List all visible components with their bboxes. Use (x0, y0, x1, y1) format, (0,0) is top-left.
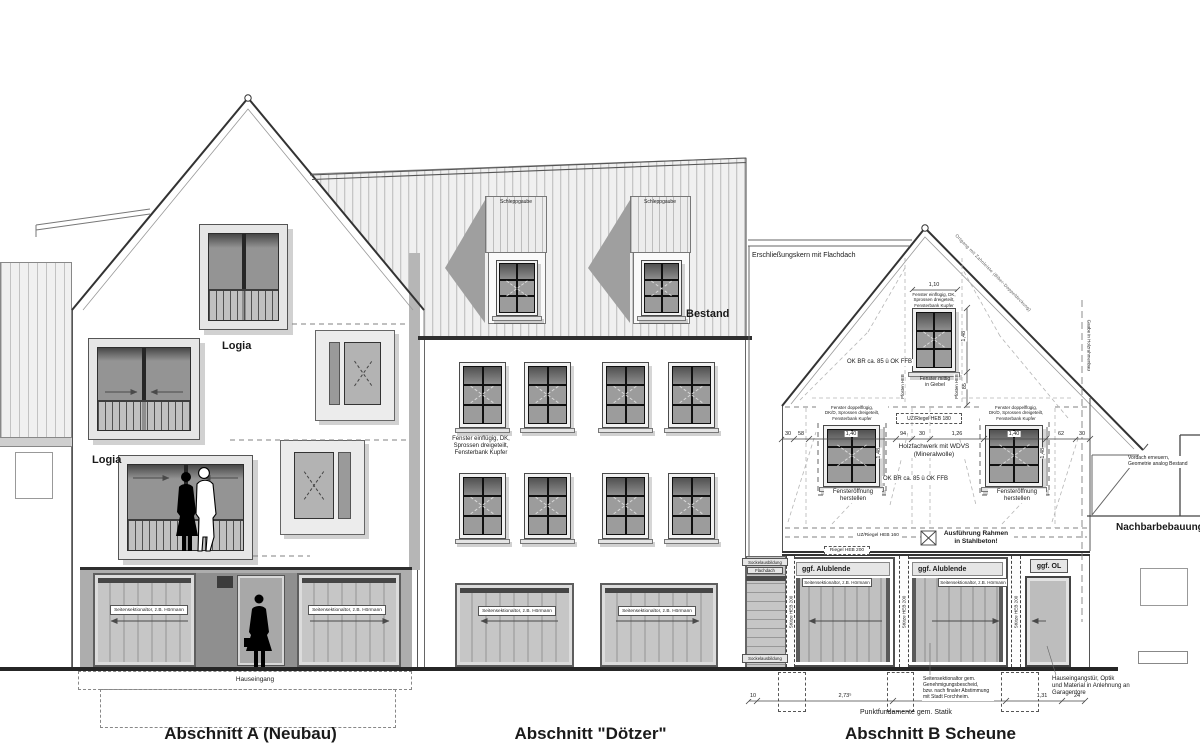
loggia-label-lower: Logia (92, 454, 121, 467)
basement-outline-2 (100, 689, 396, 728)
vertical-dim: 1,48 (1040, 448, 1046, 459)
door-body (796, 578, 890, 662)
window-6pane (459, 362, 506, 428)
label-text: ggf. OL (1037, 563, 1062, 570)
balcony-glazing (97, 347, 191, 431)
dim-label: 94 (899, 431, 907, 437)
label-text: Seitensektionaltor, z.B. Hörmann (312, 608, 382, 613)
stahlbeton-note: Ausführung Rahmen in Stahlbeton! (938, 530, 1014, 545)
column-label: Stütze HEB 200 (902, 593, 907, 630)
house-entrance-door-b (1025, 576, 1071, 667)
connector-note: Erschließungskern mit Flachdach (752, 252, 856, 260)
left-neighbour-cladding (0, 262, 72, 438)
dim-label: 1,10 (928, 282, 941, 288)
dormer-right-shadow (588, 200, 630, 323)
architectural-elevation-sheet: { "titles": { "a": "Abschnitt A (Neubau)… (0, 0, 1200, 751)
vertical-dim: 1,48 (961, 331, 967, 342)
window-spec-note: Fenster einflügig, DK, Sprossen dreigete… (444, 436, 518, 457)
side-panel (338, 452, 351, 519)
left-neighbour-band (0, 437, 72, 447)
garage-door-label: Seitensektionaltor, z.B. Hörmann (938, 578, 1008, 587)
neighbour-step (1138, 651, 1188, 664)
bestand-label: Bestand (686, 308, 729, 321)
alu-cover-strip: ggf. Alublende (796, 562, 890, 576)
label-text: Seitensektionaltor, z.B. Hörmann (114, 608, 184, 613)
window-6pane (524, 473, 571, 539)
dim-label: 62 (1057, 431, 1065, 437)
dormer-label: Schleppgaube (487, 200, 545, 206)
garage-door-d-left (455, 583, 574, 667)
dim-label: 58 (797, 431, 805, 437)
vertical-dim: 85 (962, 383, 968, 389)
window-6pane (602, 473, 649, 539)
label-text: Sockelausbildung (748, 560, 782, 565)
column-label: Stütze HEB 200 (788, 593, 793, 630)
neighbour-label: Nachbarbebauung (1116, 522, 1200, 534)
post-label: Pfosten HEB (900, 374, 905, 399)
section-title-doetzer: Abschnitt "Dötzer" (468, 724, 713, 744)
label-text: UZ/Riegel HEB 180 (907, 416, 951, 422)
neighbour-outline (1087, 435, 1200, 516)
loggia-label-upper: Logia (222, 340, 251, 353)
steel-column: Stütze HEB 200 (899, 556, 909, 667)
steel-column: Stütze HEB 200 (786, 556, 795, 667)
gable-window-6pane (912, 308, 956, 372)
gable-window-note: Fenster einflügig, DK, Sprossen dreigete… (908, 292, 960, 308)
loggia-window-upper (199, 224, 288, 330)
garage-door-b-left: ggf. Alublende (791, 557, 895, 667)
dim-label: 1,40 (845, 431, 858, 437)
post-label: Pfosten HEB (954, 374, 959, 399)
label-text: Seitensektionaltor, z.B. Hörmann (482, 609, 552, 614)
garage-door-label: Seitensektionaltor, z.B. Hörmann (618, 606, 696, 616)
alu-cover-strip: ggf. Alublende (912, 562, 1003, 576)
section-title-a: Abschnitt A (Neubau) (128, 724, 373, 744)
window-6pane (602, 362, 649, 428)
label-text: Flachdach (755, 568, 775, 573)
connector-band (746, 576, 786, 581)
vertical-dim: 1,48 (876, 448, 882, 459)
garage-door-label: Seitensektionaltor, z.B. Hörmann (478, 606, 556, 616)
opening-note: Fensteröffnung herstellen (988, 489, 1046, 503)
window-spec-note: Fenster doppelflügig, DK/D, Sprossen dre… (980, 405, 1052, 421)
door-body (912, 578, 1003, 662)
dormer-label: Schleppgaube (631, 200, 689, 206)
window-casement-upper (315, 330, 395, 421)
flachdach-label-box: Flachdach (747, 567, 783, 574)
window-leaf (294, 452, 334, 519)
loggia-glazing (208, 233, 279, 321)
building-b-right-wall (1071, 556, 1090, 668)
label-text: ggf. Alublende (918, 566, 966, 573)
garage-door-label: Seitensektionaltor, z.B. Hörmann (308, 605, 386, 615)
entrance-label: Hauseingang (224, 676, 286, 684)
garage-door-d-right (600, 583, 718, 667)
window-6pane (496, 260, 538, 316)
garage-door-a-left (93, 573, 196, 667)
fachwerk-note: Holzfachwerk mit WDVS (Mineralwolle) (893, 443, 975, 458)
dormer-left-shadow (445, 200, 485, 323)
riegel-160-label: UZ/Riegel HEB 160 (856, 533, 900, 539)
label-text: Seitensektionaltor, z.B. Hörmann (804, 580, 870, 585)
window-6pane (668, 473, 715, 539)
garage-door-a-right (297, 573, 401, 667)
transom-window (217, 576, 233, 588)
side-panel (329, 342, 340, 405)
point-foundation (778, 672, 806, 712)
riegel-200-box: Riegel HEB 200 (824, 546, 870, 555)
point-foundation (1001, 672, 1039, 712)
railing (209, 289, 278, 320)
roof-edge-note: Ortgang mit Zahnleiste (Biber-Doppeldeck… (954, 233, 1028, 308)
window-casement-lower (280, 440, 365, 535)
label-text: ggf. Alublende (802, 566, 850, 573)
label-text: Sockelausbildung (748, 656, 782, 661)
dim-label: 1,40 (1008, 431, 1021, 437)
garage-door-b-right: ggf. Alublende (907, 557, 1008, 667)
left-neighbour-window (15, 452, 53, 499)
vordach-note: Vordach erneuern, Geometrie analog Besta… (1127, 456, 1189, 468)
dim-label: 30 (918, 431, 926, 437)
dim-label: 30 (1078, 431, 1086, 437)
point-foundation (887, 672, 914, 712)
riegel-180-box: UZ/Riegel HEB 180 (896, 413, 962, 424)
window-6pane (459, 473, 506, 539)
balcony-window (88, 338, 200, 440)
window-6pane (668, 362, 715, 428)
dim-label: 2,73⁵ (838, 693, 853, 699)
building-a-corner-strip (409, 253, 420, 570)
window-leaf (344, 342, 381, 405)
railing (128, 519, 243, 550)
opening-note: Fensteröffnung herstellen (824, 489, 882, 503)
gaube-note: Gaube in Holzrahmenbau (1086, 320, 1091, 386)
label-text: Riegel HEB 200 (830, 548, 864, 553)
railing (98, 400, 190, 430)
sill-height-note: OK BR ca. 85 ü OK FFB (846, 359, 913, 366)
window-spec-note: Fenster doppelflügig, DK/D, Sprossen dre… (816, 405, 888, 421)
skylight-note-box: ggf. OL (1030, 559, 1068, 573)
dim-label: 1,26 (951, 431, 964, 437)
entrance-door-note: Hauseingangstür, Optik und Material in A… (1052, 676, 1136, 697)
window-6pane (524, 362, 571, 428)
neighbour-window (1140, 568, 1188, 606)
entrance-door (238, 576, 284, 665)
foundation-note: Punktfundamente gem. Statik (860, 709, 952, 717)
section-title-b: Abschnitt B Scheune (808, 724, 1053, 744)
steel-column: Stütze HEB 200 (1011, 556, 1021, 667)
window-6pane (641, 260, 682, 316)
sill-height-note: OK BR ca. 85 ü OK FFB (882, 476, 949, 483)
garage-door-label: Seitensektionaltor, z.B. Hörmann (802, 578, 872, 587)
loggia-opening-lower (118, 455, 253, 560)
garage-door-label: Seitensektionaltor, z.B. Hörmann (110, 605, 188, 615)
ground-line (0, 667, 1118, 671)
loggia-glazing (127, 464, 244, 551)
label-text: Seitensektionaltor, z.B. Hörmann (622, 609, 692, 614)
gable-window-position-note: Fenster mittig in Giebel (914, 377, 956, 389)
label-text: Seitensektionaltor, z.B. Hörmann (940, 580, 1006, 585)
tor-approval-note: Seitensektionaltor gem. Genehmigungsbesc… (922, 677, 994, 701)
sockel-label-box: Sockelausbildung (742, 654, 788, 663)
column-label: Stütze HEB 200 (1014, 593, 1019, 630)
dim-label: 30 (784, 431, 792, 437)
sockel-label-box: Sockelausbildung (742, 558, 788, 566)
dim-label: 1,31 (1036, 693, 1049, 699)
dim-label: 10 (749, 693, 757, 699)
